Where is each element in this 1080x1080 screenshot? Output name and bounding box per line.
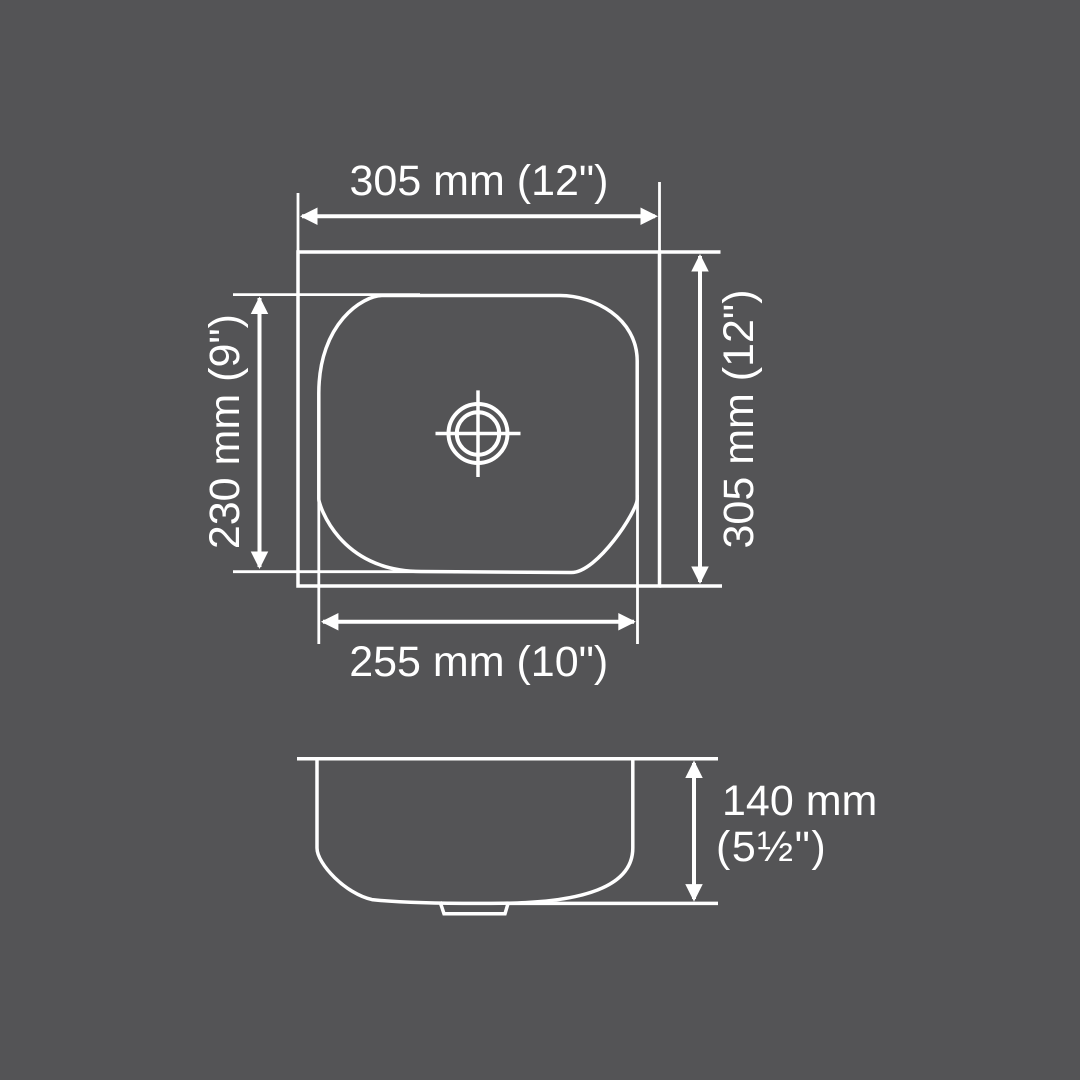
- svg-text:305 mm (12"): 305 mm (12"): [715, 289, 763, 548]
- svg-text:230 mm (9"): 230 mm (9"): [201, 314, 249, 549]
- svg-text:140 mm: 140 mm: [722, 777, 877, 825]
- svg-text:255 mm (10"): 255 mm (10"): [349, 638, 608, 686]
- svg-text:(5½"): (5½"): [716, 823, 827, 871]
- svg-text:305 mm (12"): 305 mm (12"): [349, 157, 608, 205]
